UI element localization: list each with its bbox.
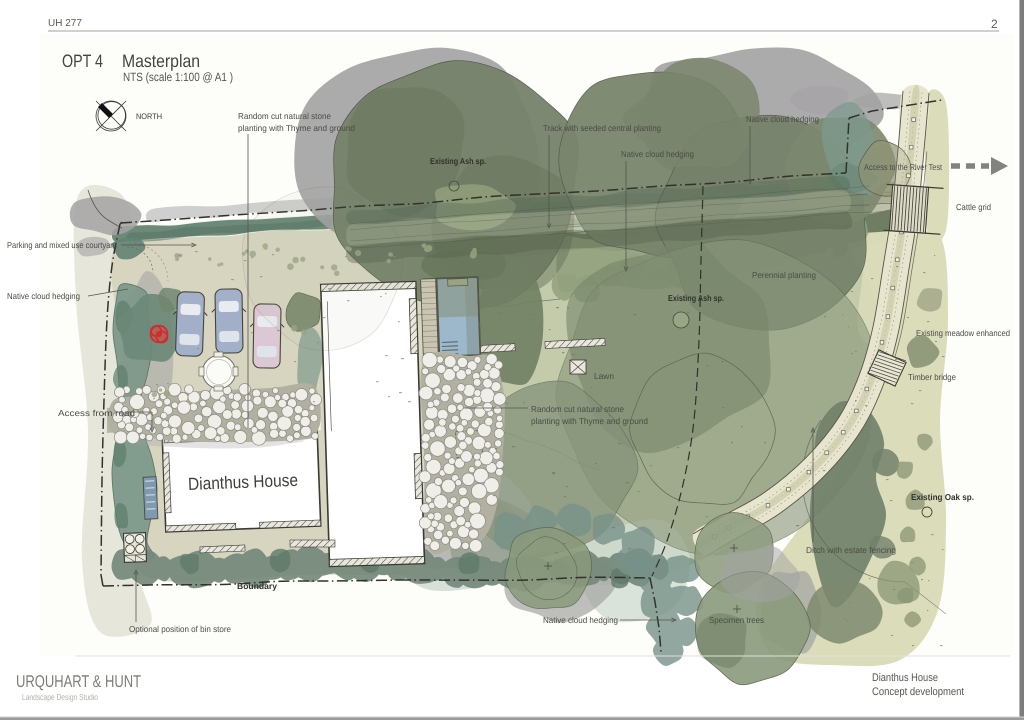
- svg-text:OPT 4: OPT 4: [62, 51, 103, 71]
- svg-text:Existing Ash sp.: Existing Ash sp.: [668, 293, 724, 303]
- svg-text:Concept development: Concept development: [872, 686, 964, 698]
- svg-text:Random cut natural stone: Random cut natural stone: [531, 404, 624, 414]
- svg-text:Existing Ash sp.: Existing Ash sp.: [430, 156, 486, 166]
- svg-text:Timber bridge: Timber bridge: [908, 372, 956, 382]
- svg-text:NTS (scale 1:100 @ A1 ): NTS (scale 1:100 @ A1 ): [123, 70, 233, 84]
- svg-text:Parking and mixed use courtyar: Parking and mixed use courtyard: [7, 240, 117, 250]
- svg-text:Access to the River Test: Access to the River Test: [864, 162, 943, 172]
- svg-text:planting with Thyme and ground: planting with Thyme and ground: [238, 123, 355, 133]
- svg-text:Masterplan: Masterplan: [122, 51, 200, 71]
- svg-text:Boundary: Boundary: [237, 581, 277, 591]
- svg-text:Native cloud hedging: Native cloud hedging: [7, 291, 80, 301]
- svg-text:Lawn: Lawn: [594, 371, 614, 381]
- svg-text:URQUHART & HUNT: URQUHART & HUNT: [16, 672, 141, 691]
- svg-text:UH 277: UH 277: [48, 18, 82, 29]
- svg-text:Random cut natural stone: Random cut natural stone: [238, 111, 331, 121]
- svg-text:Specimen trees: Specimen trees: [709, 615, 764, 625]
- svg-text:Cattle grid: Cattle grid: [956, 202, 991, 212]
- svg-text:Track with seeded central plan: Track with seeded central planting: [543, 123, 661, 133]
- svg-text:Landscape Design Studio: Landscape Design Studio: [22, 692, 98, 702]
- svg-text:Native cloud hedging: Native cloud hedging: [621, 149, 694, 159]
- svg-text:Access from road: Access from road: [58, 408, 135, 418]
- svg-text:Dianthus House: Dianthus House: [872, 672, 938, 684]
- svg-text:2: 2: [991, 17, 998, 31]
- svg-text:planting with Thyme and ground: planting with Thyme and ground: [531, 416, 648, 426]
- svg-text:Existing Oak sp.: Existing Oak sp.: [911, 492, 974, 502]
- svg-text:Optional position of bin store: Optional position of bin store: [129, 624, 231, 634]
- svg-text:Existing meadow enhanced: Existing meadow enhanced: [916, 328, 1010, 338]
- svg-text:Ditch with estate fencing: Ditch with estate fencing: [806, 545, 896, 555]
- svg-text:Perennial planting: Perennial planting: [752, 270, 816, 280]
- svg-text:Dianthus House: Dianthus House: [188, 470, 299, 494]
- svg-text:Native cloud hedging: Native cloud hedging: [746, 114, 819, 124]
- svg-text:Native cloud hedging: Native cloud hedging: [543, 615, 618, 625]
- svg-text:NORTH: NORTH: [136, 112, 162, 121]
